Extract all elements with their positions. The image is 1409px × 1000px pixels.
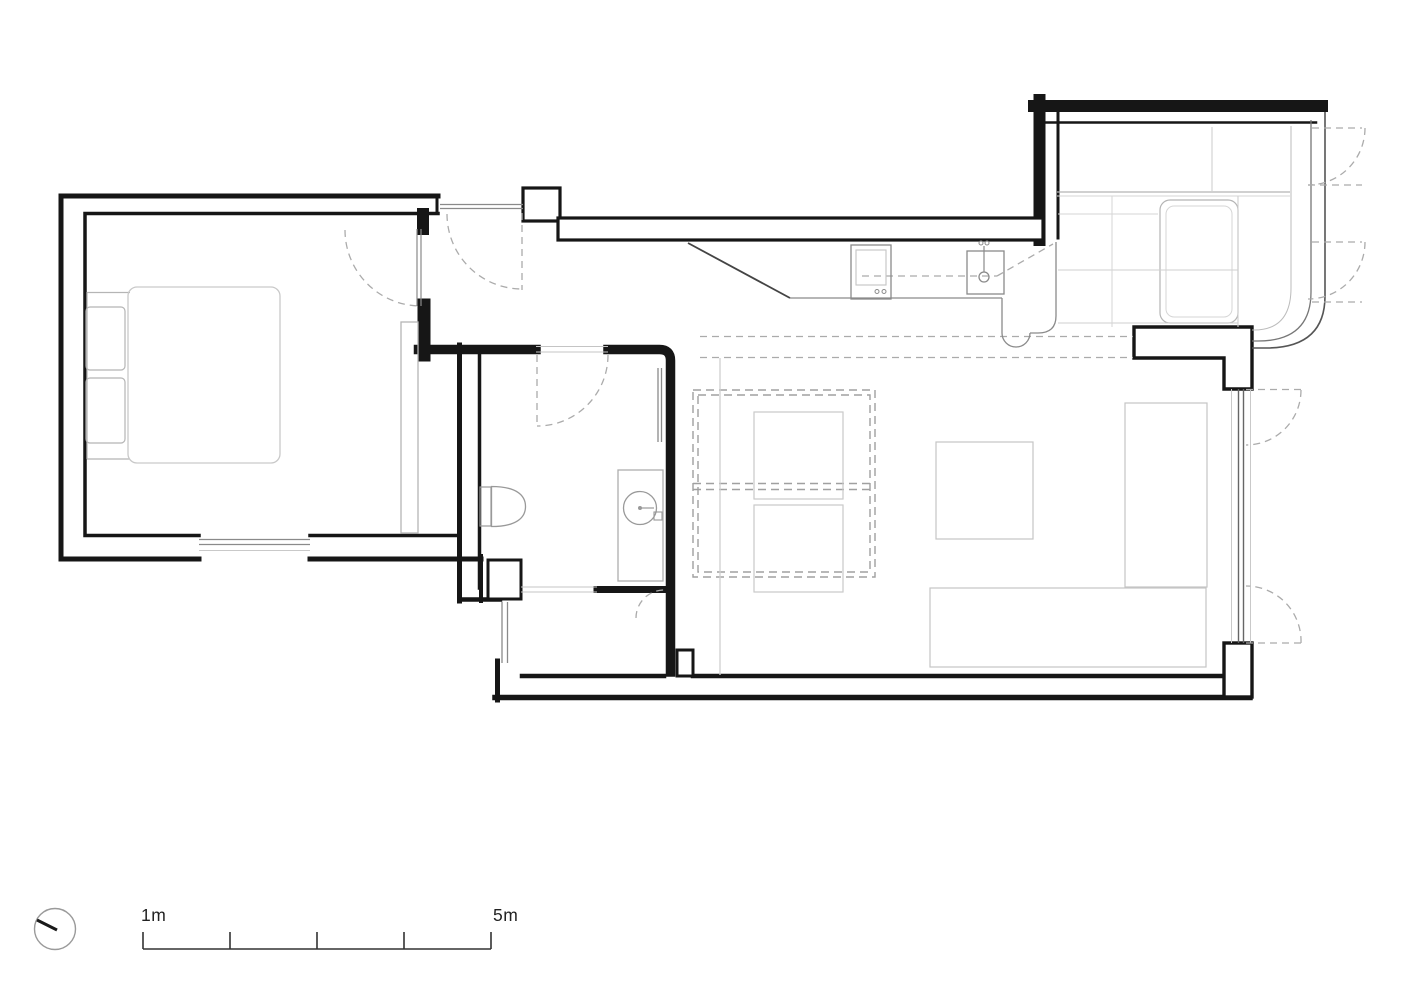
balcony-window-swing-bottom: [1308, 242, 1365, 302]
bed: [86, 287, 280, 463]
scale-label-end: 5m: [493, 905, 518, 925]
balcony-furniture: [1057, 127, 1290, 327]
pillow: [86, 307, 125, 370]
storage-door-swing: [636, 590, 664, 618]
bathroom-door-swing: [537, 355, 608, 426]
vanity-sink: [618, 470, 663, 581]
pillow: [86, 378, 125, 443]
wall-blocks: [488, 188, 1252, 697]
compass-needle: [37, 920, 57, 930]
angled-wall: [688, 243, 790, 298]
mattress-square: [754, 505, 843, 592]
living-east-window: [1232, 389, 1251, 643]
counter-edge: [790, 242, 1056, 347]
living-window-swing-bottom: [1246, 586, 1301, 643]
kitchen-sink: [967, 241, 1004, 294]
entry-sidelight-window: [440, 205, 523, 209]
living-room-furniture: [693, 358, 1207, 675]
coffee-table: [936, 442, 1033, 539]
bathroom-fixtures: [480, 368, 663, 581]
toilet: [480, 487, 526, 527]
scale-label-start: 1m: [141, 905, 166, 925]
sofa: [930, 588, 1206, 667]
north-wall-band: [558, 218, 1043, 240]
ceiling-dashed-lines: [700, 337, 1133, 358]
balcony-seat: [1160, 200, 1238, 323]
north-arrow-icon: [35, 909, 76, 950]
bathroom-door-frame: [536, 347, 608, 353]
mirror: [658, 368, 662, 442]
bedroom-door-swing: [345, 230, 420, 306]
duvet: [128, 287, 280, 463]
scale-bar: 1m 5m: [141, 905, 518, 949]
scale-ticks: [143, 932, 491, 949]
balcony-curved-glazing: [1252, 112, 1325, 348]
storage-window: [502, 602, 508, 663]
living-window-swing-top: [1246, 390, 1301, 446]
bedroom-window: [199, 540, 310, 551]
entry-door-swing: [447, 213, 522, 290]
bedroom-door-leaf: [417, 229, 421, 306]
shelf-unit: [1125, 403, 1207, 587]
storage-corner-pier: [488, 560, 521, 599]
storage-threshold: [521, 587, 597, 592]
bedroom-furniture: [86, 287, 418, 533]
floor-plan-page: 1m 5m: [0, 0, 1409, 1000]
living-sw-pier: [677, 650, 693, 676]
stove: [851, 245, 891, 299]
kitchen: [688, 241, 1056, 347]
southeast-pier: [1224, 643, 1252, 697]
mid-wall-band: [1134, 327, 1252, 389]
entry-jamb-block: [523, 188, 560, 221]
floor-plan-drawing: 1m 5m: [0, 0, 1409, 1000]
exterior-walls: [61, 100, 1322, 700]
balcony-window-swing-top: [1308, 128, 1365, 185]
mattress-square: [754, 412, 843, 499]
